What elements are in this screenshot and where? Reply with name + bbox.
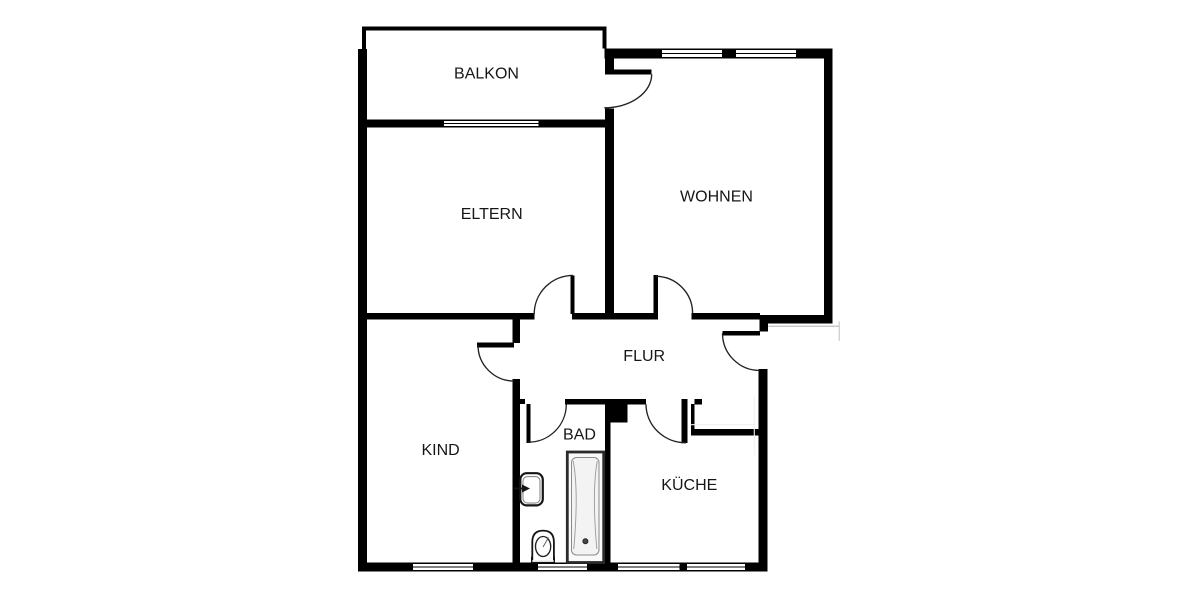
svg-text:BAD: BAD	[563, 427, 596, 444]
svg-text:ELTERN: ELTERN	[461, 206, 523, 223]
svg-text:KÜCHE: KÜCHE	[661, 476, 717, 494]
svg-text:BALKON: BALKON	[454, 66, 519, 83]
svg-text:KIND: KIND	[421, 442, 459, 459]
svg-text:WOHNEN: WOHNEN	[680, 188, 753, 205]
svg-text:FLUR: FLUR	[623, 348, 665, 365]
